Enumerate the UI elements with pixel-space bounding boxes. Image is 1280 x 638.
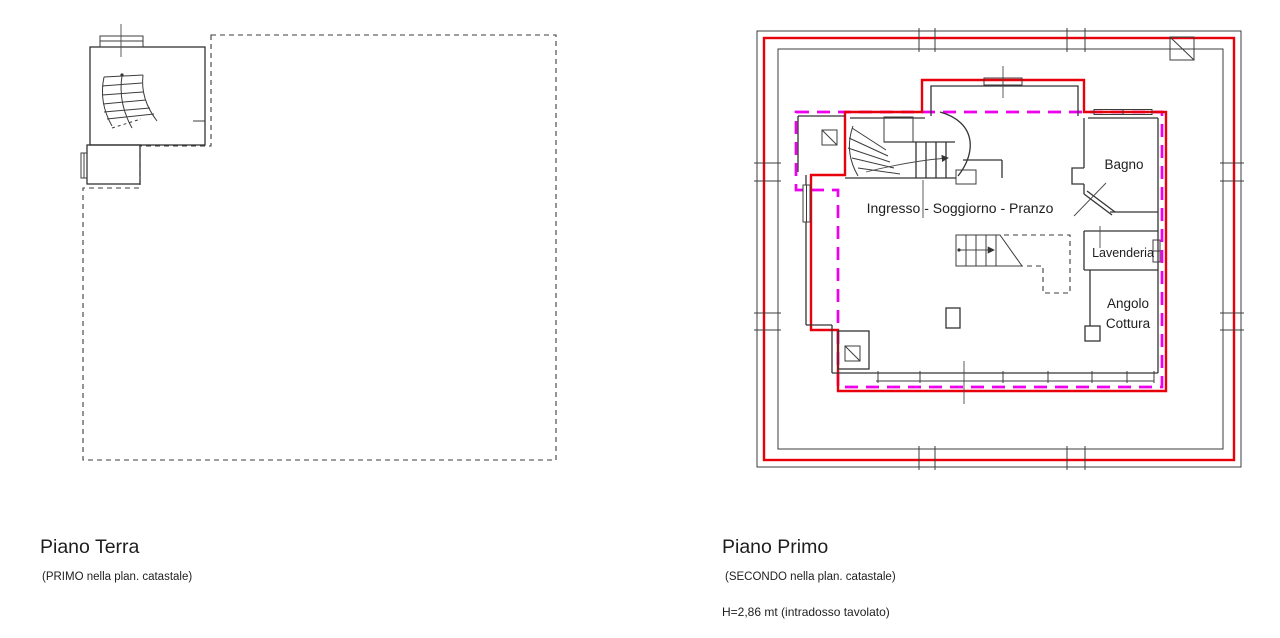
ground-floor-plan: [81, 24, 556, 460]
roof-red-border: [764, 38, 1234, 460]
room-label-lavenderia: Lavenderia: [1092, 246, 1154, 260]
flue-block: [838, 331, 869, 369]
window-top: [100, 36, 143, 47]
curved-staircase: [102, 73, 157, 128]
entry-window: [803, 185, 810, 222]
lavenderia-window: [1153, 240, 1160, 262]
room-label-bagno: Bagno: [1104, 157, 1143, 172]
roof-inner-border: [778, 49, 1223, 449]
floorplan-sheet: Ingresso - Soggiorno - Pranzo Bagno Lave…: [0, 0, 1280, 638]
entry-niche-hatch: [822, 130, 837, 145]
bump-window: [984, 66, 1022, 98]
left-plan-subtitle: (PRIMO nella plan. catastale): [42, 571, 192, 583]
border-ticks: [754, 28, 1244, 470]
room-label-main: Ingresso - Soggiorno - Pranzo: [867, 200, 1054, 216]
column: [946, 308, 960, 328]
room-label-cottura: Cottura: [1106, 316, 1151, 331]
captions: Piano Terra (PRIMO nella plan. catastale…: [40, 536, 896, 619]
right-plan-title: Piano Primo: [722, 536, 828, 558]
right-plan-subtitle: (SECONDO nella plan. catastale): [725, 571, 896, 583]
kitchen-wall-foot: [1085, 326, 1100, 341]
central-staircase: [956, 235, 1070, 293]
annex-window: [81, 153, 87, 178]
bagno-door: [1074, 183, 1115, 216]
stair-room-walls: [90, 47, 205, 145]
first-floor-plan: Ingresso - Soggiorno - Pranzo Bagno Lave…: [754, 28, 1244, 470]
terrace-dashed-outline: [83, 35, 556, 460]
upper-curved-staircase: [848, 112, 976, 184]
left-plan-title: Piano Terra: [40, 536, 140, 558]
annex-walls: [87, 145, 140, 184]
floorplan-drawing: Ingresso - Soggiorno - Pranzo Bagno Lave…: [0, 0, 1280, 638]
right-plan-height-note: H=2,86 mt (intradosso tavolato): [722, 605, 890, 619]
roof-outer-border: [757, 31, 1241, 467]
south-window-band: [876, 361, 1154, 404]
room-label-angolo: Angolo: [1107, 296, 1149, 311]
